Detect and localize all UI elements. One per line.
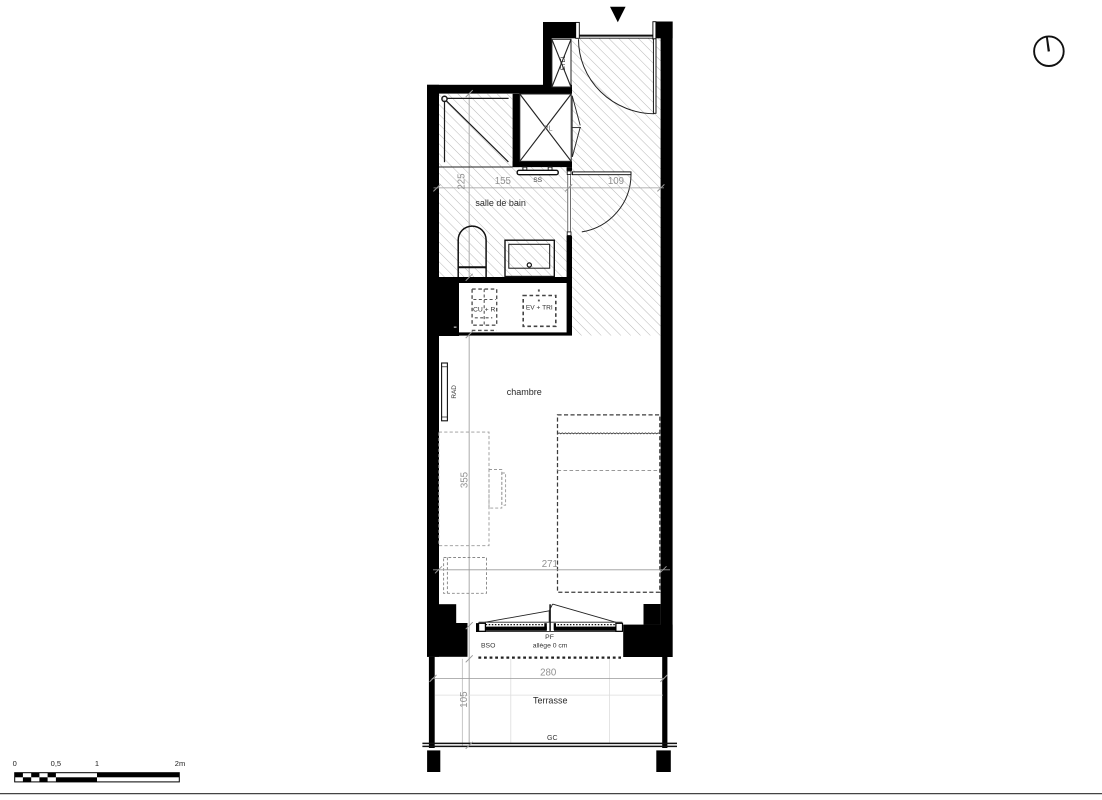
svg-text:salle de bain: salle de bain <box>475 198 526 208</box>
svg-text:GC: GC <box>547 735 558 742</box>
svg-text:355: 355 <box>459 472 470 488</box>
svg-text:ETEL: ETEL <box>560 54 567 70</box>
svg-text:chambre: chambre <box>507 387 542 397</box>
svg-text:SS: SS <box>533 177 542 184</box>
svg-text:225: 225 <box>456 173 467 189</box>
svg-text:BSO: BSO <box>481 642 495 649</box>
svg-text:EV + TRI: EV + TRI <box>526 305 553 312</box>
svg-text:155: 155 <box>495 176 511 187</box>
svg-text:1: 1 <box>95 759 99 768</box>
svg-text:allège 0 cm: allège 0 cm <box>533 642 568 649</box>
svg-text:RAD: RAD <box>451 385 458 399</box>
svg-text:0: 0 <box>13 759 17 768</box>
svg-text:0,5: 0,5 <box>51 759 61 768</box>
svg-text:105: 105 <box>459 692 470 708</box>
svg-text:280: 280 <box>540 668 557 679</box>
svg-text:PF: PF <box>545 634 554 641</box>
svg-text:PL: PL <box>544 126 553 133</box>
svg-text:Terrasse: Terrasse <box>533 696 568 706</box>
svg-text:109: 109 <box>608 176 624 187</box>
svg-text:CU + R: CU + R <box>473 307 496 314</box>
svg-text:2m: 2m <box>175 759 185 768</box>
svg-text:271: 271 <box>542 559 558 570</box>
